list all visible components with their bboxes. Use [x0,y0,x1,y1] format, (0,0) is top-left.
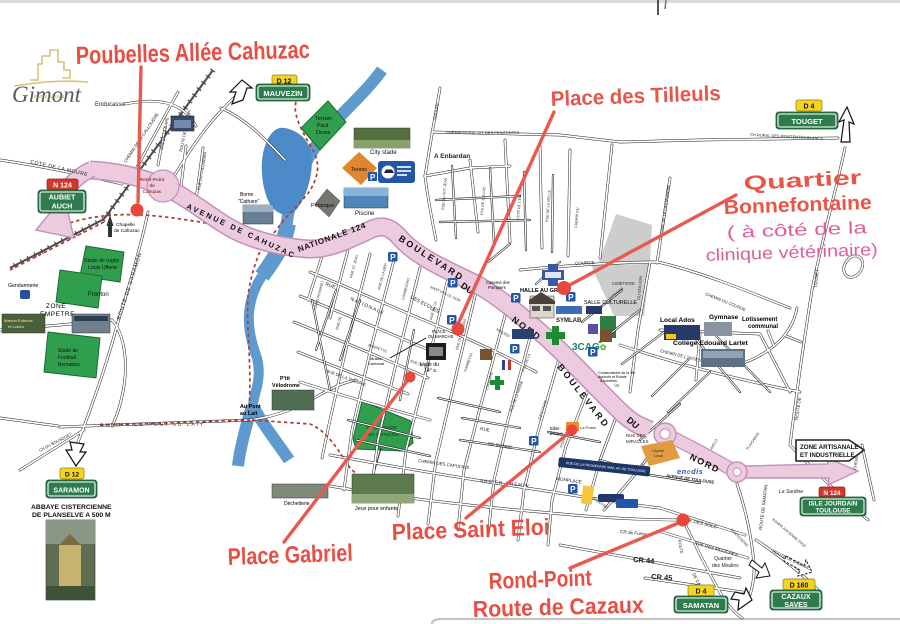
svg-text:CR 45: CR 45 [651,572,673,582]
svg-text:Louis Ufferte: Louis Ufferte [88,265,117,271]
svg-text:RUE DES: RUE DES [626,433,646,438]
svg-text:D 12: D 12 [65,472,80,479]
svg-text:SAVES: SAVES [784,602,808,609]
svg-text:de Cahuzac: de Cahuzac [114,228,140,234]
svg-text:Hôpital: Hôpital [652,449,664,453]
svg-text:communal: communal [748,324,778,330]
svg-text:La Sardine: La Sardine [779,489,803,495]
svg-text:P: P [449,316,455,325]
svg-text:TOUGET: TOUGET [791,117,823,126]
svg-text:Jeux pour enfants: Jeux pour enfants [355,506,398,512]
svg-text:Tennis: Tennis [351,167,367,173]
svg-text:Paul: Paul [317,123,328,129]
svg-text:Borne: Borne [240,192,254,198]
svg-text:P: P [590,348,596,357]
svg-text:Bernabeu: Bernabeu [58,362,80,368]
svg-text:Rond-Point: Rond-Point [488,564,592,594]
svg-text:Fronton: Fronton [88,292,109,298]
svg-text:Piscine: Piscine [355,211,375,217]
svg-text:CIMETIERE: CIMETIERE [612,281,635,286]
svg-text:Collège Edouard Lartet: Collège Edouard Lartet [673,340,749,347]
svg-text:City stade: City stade [370,150,397,156]
svg-text:P: P [370,173,376,182]
svg-text:CHEMIN RURAL DIT DES PENITENTE: CHEMIN RURAL DIT DES PENITENTES [446,130,520,135]
svg-text:AUBIET: AUBIET [49,193,76,202]
svg-text:Stade de rugby: Stade de rugby [84,258,120,264]
svg-text:et Loisirs: et Loisirs [8,324,24,329]
svg-text:P: P [570,485,576,494]
svg-text:Place Saint Eloi: Place Saint Eloi [391,513,550,544]
svg-text:SARAMON: SARAMON [53,488,89,495]
svg-text:P: P [568,293,574,302]
svg-text:EMPETRE: EMPETRE [40,311,75,318]
svg-text:Maison Enfance: Maison Enfance [4,318,33,323]
svg-text:AUCH: AUCH [52,202,73,211]
svg-text:SYMLAB: SYMLAB [556,318,582,324]
svg-text:d'Autrefois: d'Autrefois [600,379,617,383]
svg-text:14° s.: 14° s. [424,368,437,374]
svg-text:Lotissement: Lotissement [742,317,777,323]
svg-text:Pompiers: Pompiers [488,285,506,290]
svg-text:Route de Cazaux: Route de Cazaux [472,592,644,622]
svg-text:MAUVEZIN: MAUVEZIN [263,89,302,98]
svg-text:N 124: N 124 [823,490,841,497]
svg-text:ABBAYE CISTERCIENNE: ABBAYE CISTERCIENNE [31,504,112,511]
svg-text:P: P [513,294,519,303]
svg-text:Quartier: Quartier [714,556,732,562]
svg-text:Au Pont: Au Pont [240,404,261,410]
svg-text:au Lait: au Lait [240,411,258,417]
svg-text:P: P [512,345,518,354]
svg-text:N 124: N 124 [53,183,72,190]
svg-text:Pétanque: Pétanque [311,203,335,209]
svg-text:Local: Local [654,454,663,458]
svg-text:P'tit: P'tit [280,376,290,382]
svg-text:La Poste: La Poste [580,425,597,430]
svg-text:Enducasse: Enducasse [95,102,125,108]
svg-text:DU MARCHE: DU MARCHE [428,334,454,339]
svg-text:D 4: D 4 [804,104,815,111]
svg-text:de: de [149,183,155,188]
svg-text:ZONE: ZONE [46,303,66,310]
svg-text:CR 44: CR 44 [633,555,656,566]
svg-text:ISLE JOURDAIN: ISLE JOURDAIN [809,501,858,508]
svg-text:Portes du Gers: Portes du Gers [34,94,65,99]
svg-text:Gendarmerie: Gendarmerie [8,283,38,289]
svg-text:A Enbardan: A Enbardan [434,153,470,160]
svg-text:DES CAPUCINS: DES CAPUCINS [365,432,399,437]
svg-text:Cantonal: Cantonal [368,361,384,366]
svg-text:Chapelle: Chapelle [116,222,135,228]
svg-text:Rond-Point: Rond-Point [140,177,165,182]
svg-text:Déchetterie: Déchetterie [284,501,310,507]
svg-text:P: P [450,279,456,288]
svg-text:D 4: D 4 [696,589,707,596]
svg-text:Stade de: Stade de [58,348,78,354]
svg-text:enedis: enedis [677,467,703,476]
svg-text:SALLE CULTURELLE: SALLE CULTURELLE [584,300,637,306]
svg-text:"Cathare": "Cathare" [238,199,260,205]
svg-text:Vélodrome: Vélodrome [272,383,300,389]
svg-text:Dross: Dross [316,130,331,136]
svg-text:Football: Football [58,355,76,361]
svg-text:CHEMIN DU PONT AU LAIT: CHEMIN DU PONT AU LAIT [100,422,205,428]
svg-text:CAZAUX: CAZAUX [781,594,810,601]
svg-text:D 160: D 160 [790,583,809,590]
svg-text:Gymnase: Gymnase [709,314,739,321]
svg-text:des Moulins: des Moulins [712,563,739,569]
svg-text:COURDE: COURDE [575,260,595,266]
svg-text:TOULOUSE: TOULOUSE [816,508,851,515]
svg-text:P: P [531,437,537,446]
svg-text:Cahuzac: Cahuzac [143,189,162,194]
svg-text:DE PLANSELVE A 500 M: DE PLANSELVE A 500 M [32,512,111,519]
svg-text:P: P [390,253,396,262]
svg-text:ET INDUSTRIELLE: ET INDUSTRIELLE [800,452,855,459]
svg-text:thèque: thèque [550,431,563,436]
svg-text:MIRACLES: MIRACLES [626,439,649,444]
svg-text:Terrain: Terrain [315,116,332,122]
svg-text:Local Ados: Local Ados [660,317,695,324]
svg-text:Place Gabriel: Place Gabriel [227,540,353,571]
svg-text:SAMATAN: SAMATAN [683,601,719,610]
svg-text:ZONE ARTISANALE: ZONE ARTISANALE [800,444,859,451]
